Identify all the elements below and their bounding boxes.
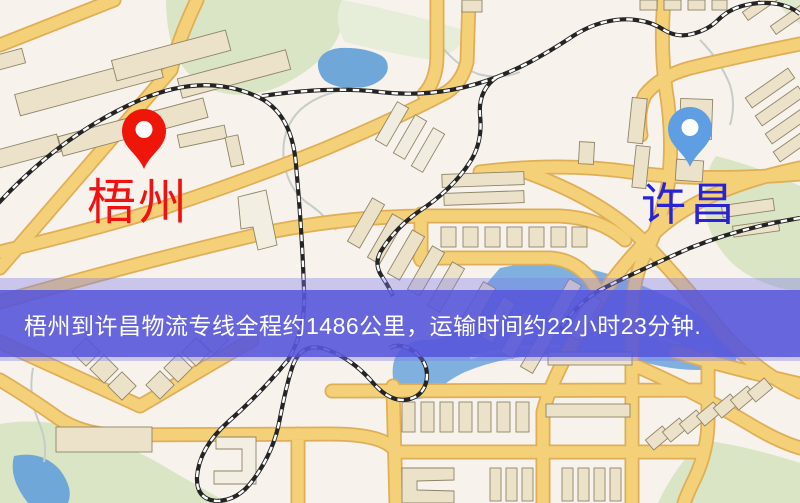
- lake-top: [318, 48, 388, 88]
- destination-label: 许昌: [641, 182, 739, 227]
- route-info-text: 梧州到许昌物流专线全程约1486公里，运输时间约22小时23分钟.: [0, 307, 701, 341]
- map-screenshot: 梧州 许昌 梧州到许昌物流专线全程约1486公里，运输时间约22小时23分钟.: [0, 0, 800, 503]
- map-canvas: [0, 0, 800, 503]
- info-banner: 梧州到许昌物流专线全程约1486公里，运输时间约22小时23分钟.: [0, 290, 800, 357]
- origin-label: 梧州: [87, 179, 189, 228]
